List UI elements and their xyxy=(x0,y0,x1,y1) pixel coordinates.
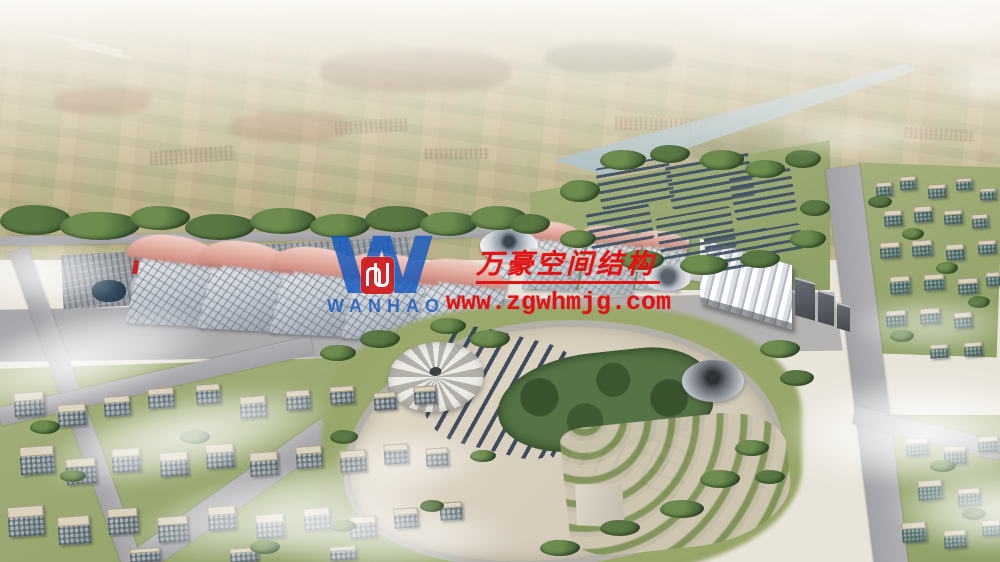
tree-cluster xyxy=(470,330,510,348)
tree-cluster xyxy=(760,340,800,358)
tree-cluster xyxy=(540,540,580,556)
tree-cluster xyxy=(360,330,400,348)
watermark-company-name: 万豪空间结构 xyxy=(476,251,660,284)
tree-cluster xyxy=(735,440,769,456)
watermark-logo-red-monogram-icon xyxy=(361,257,394,294)
cloud xyxy=(325,428,490,490)
tree-cluster xyxy=(700,470,740,488)
tree-cluster xyxy=(30,420,60,434)
tree-cluster xyxy=(936,262,958,274)
tree-cluster xyxy=(430,318,466,334)
atmospheric-haze xyxy=(0,0,1000,260)
tree-cluster xyxy=(660,500,704,518)
tree-cluster xyxy=(600,520,640,536)
tree-cluster xyxy=(780,370,814,386)
tree-cluster xyxy=(755,470,785,484)
aerial-rendering-exhibition-campus: W WANHAO 万豪空间结构 www.zgwhmjg.com xyxy=(0,0,1000,562)
watermark-website-url: www.zgwhmjg.com xyxy=(446,288,671,317)
tree-cluster xyxy=(320,345,356,361)
watermark-logo-wordmark: WANHAO xyxy=(327,296,451,317)
